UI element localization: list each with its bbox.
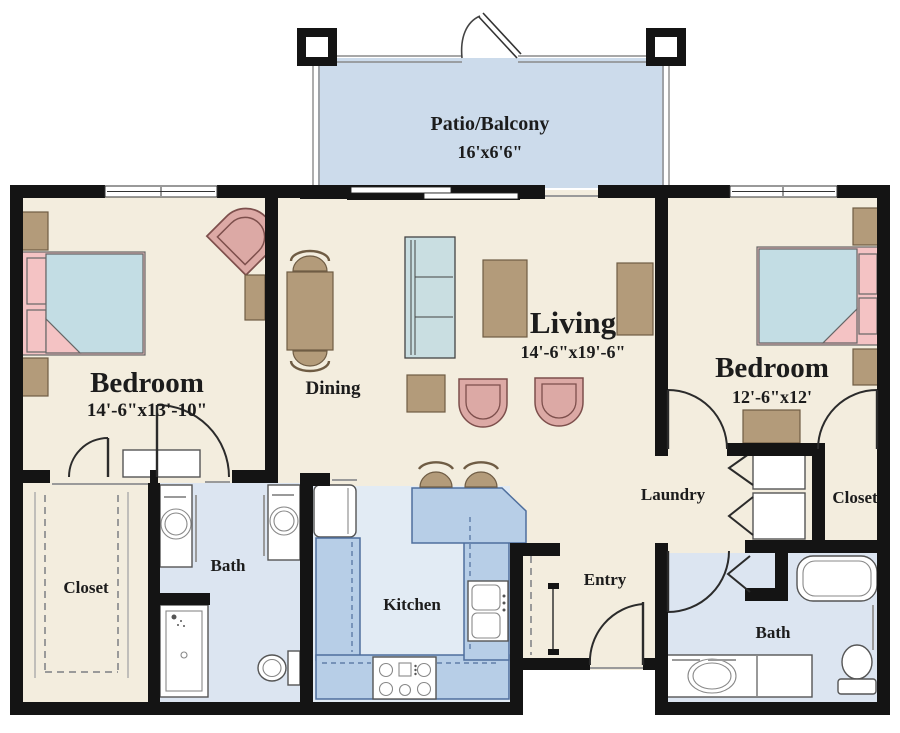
dryer xyxy=(753,493,805,539)
counter-left xyxy=(316,538,360,660)
bedroom-right-label: Bedroom xyxy=(715,352,829,384)
sofa xyxy=(405,237,455,358)
stove xyxy=(373,657,436,699)
bed xyxy=(22,252,145,355)
bed xyxy=(757,247,883,345)
bedroom-left-label: Bedroom xyxy=(90,367,204,399)
entry-label: Entry xyxy=(584,570,627,589)
living-label: Living xyxy=(530,305,617,340)
living-dims: 14'-6"x19'-6" xyxy=(521,342,626,362)
floor-plan: Patio/Balcony 16'x6'6" Bedroom 14'-6"x13… xyxy=(0,0,900,733)
closet-right-label: Closet xyxy=(832,488,878,507)
window xyxy=(105,186,217,197)
closet-left-label: Closet xyxy=(63,578,109,597)
patio-label: Patio/Balcony xyxy=(431,113,550,135)
patio-screen-door xyxy=(462,13,521,58)
dresser xyxy=(743,410,800,443)
vanity-sink xyxy=(662,655,812,697)
patio-pillar-left xyxy=(297,28,337,66)
console-table xyxy=(483,260,527,337)
kitchen-sink xyxy=(468,581,508,641)
refrigerator xyxy=(314,485,356,537)
nightstand xyxy=(22,358,48,396)
bath-right-label: Bath xyxy=(756,623,792,642)
bedroom-left-dims: 14'-6"x13'-10" xyxy=(87,400,207,421)
armchair xyxy=(459,379,507,427)
vanity-sink xyxy=(160,485,192,567)
bedroom-right-dims: 12'-6"x12' xyxy=(732,387,812,407)
dresser xyxy=(245,275,265,320)
dining-table xyxy=(287,272,333,350)
window xyxy=(730,186,837,197)
patio-pillar-right xyxy=(646,28,686,66)
vanity-sink xyxy=(268,485,300,560)
low-dresser xyxy=(123,450,200,477)
dining-label: Dining xyxy=(306,378,361,399)
nightstand xyxy=(22,212,48,250)
patio-dims: 16'x6'6" xyxy=(458,142,523,162)
kitchen-label: Kitchen xyxy=(383,595,441,614)
shower xyxy=(160,605,208,697)
bathtub xyxy=(797,556,877,601)
bath-left-label: Bath xyxy=(211,556,247,575)
laundry-label: Laundry xyxy=(641,485,706,504)
dining-furniture xyxy=(287,251,333,371)
tv-console xyxy=(617,263,653,335)
side-table xyxy=(407,375,445,412)
entry-recess xyxy=(523,670,655,716)
floor-plan-canvas: Patio/Balcony 16'x6'6" Bedroom 14'-6"x13… xyxy=(0,0,900,733)
armchair xyxy=(535,378,583,426)
nightstand xyxy=(853,349,879,385)
breakfast-bar xyxy=(412,488,526,543)
nightstand xyxy=(853,208,879,245)
